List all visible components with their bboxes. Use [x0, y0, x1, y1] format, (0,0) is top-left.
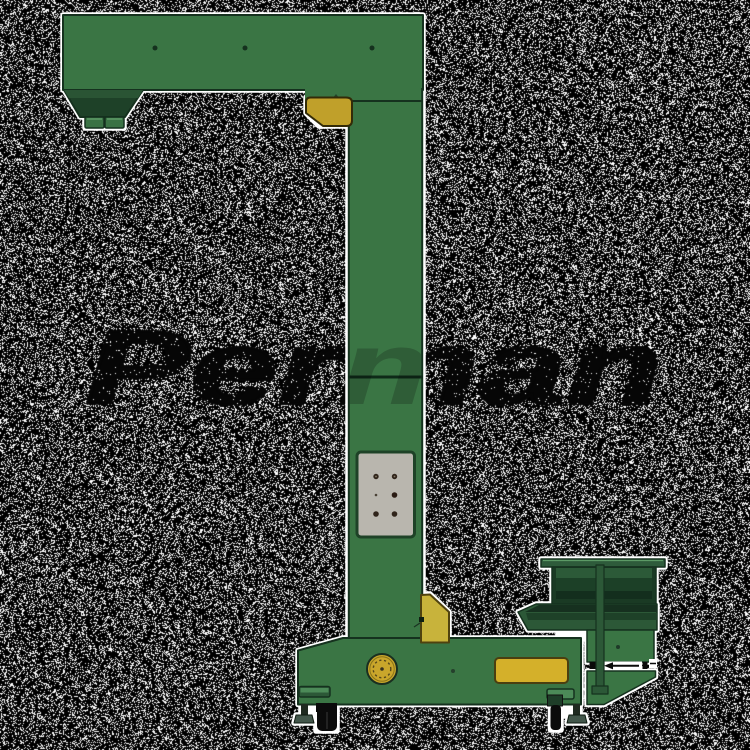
- svg-text:Perman: Perman: [85, 310, 663, 427]
